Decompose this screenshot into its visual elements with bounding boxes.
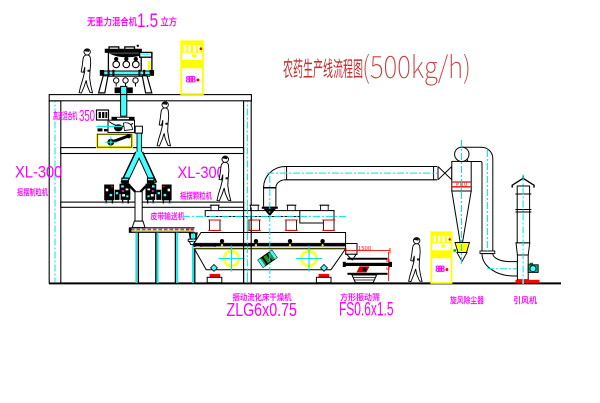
- svg-text:1500: 1500: [358, 246, 371, 252]
- svg-text:FS0.6x1.5: FS0.6x1.5: [339, 300, 394, 320]
- svg-text:XL-300: XL-300: [15, 164, 63, 182]
- svg-text:1.5: 1.5: [137, 9, 158, 31]
- svg-text:XL-300: XL-300: [178, 164, 226, 182]
- svg-text:350: 350: [79, 106, 95, 124]
- svg-text:ZLG6x0.75: ZLG6x0.75: [227, 300, 297, 320]
